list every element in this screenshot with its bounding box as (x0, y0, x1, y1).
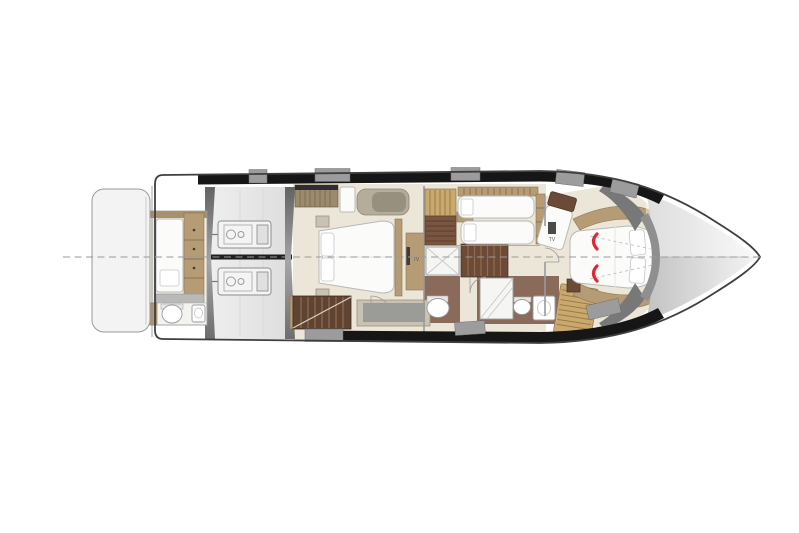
crew-bathroom-joinery (150, 303, 157, 325)
guest-bed-1-pillow (461, 199, 473, 215)
master-stairs (290, 296, 351, 329)
vip-pillow (629, 257, 646, 283)
master-dresser (357, 300, 430, 326)
master-pillow (321, 258, 334, 281)
vip-tv-screen (548, 222, 556, 234)
deck-hatch (315, 169, 350, 182)
crew-toilet (162, 305, 182, 323)
master-pillow (321, 233, 334, 256)
guest-bed-2-pillow (464, 224, 476, 241)
crew-sink (192, 305, 205, 322)
master-sofa (357, 189, 409, 215)
master-tv-screen (407, 247, 411, 265)
master-tv-cabinet: TV (406, 233, 424, 290)
guest-toilet (514, 300, 531, 315)
master-tv-label: TV (413, 257, 420, 263)
deck-hatch (451, 168, 480, 181)
crew-bed-pillow (160, 270, 179, 286)
master-wardrobe (295, 185, 338, 207)
crew-cabin (150, 211, 207, 325)
guest-wardrobe-top (458, 187, 538, 196)
engine-port (210, 221, 271, 248)
central-stairs (461, 244, 508, 277)
bow-deck-highlight (646, 193, 757, 257)
master-cabinet (340, 187, 355, 212)
deck-hatch (455, 320, 486, 335)
companionway-stairs (425, 189, 456, 245)
yacht-floorplan-canvas: TV (0, 0, 799, 533)
floorplan-svg: TV (0, 0, 799, 533)
deck-hatch (249, 170, 267, 184)
guest-cabin-twin (456, 187, 545, 246)
engine-room-floor (206, 187, 288, 339)
engine-starboard (210, 268, 271, 295)
vip-pillow (629, 229, 646, 255)
swim-platform (92, 189, 150, 332)
deck-hatch (305, 329, 343, 342)
guest-sink-basin (538, 301, 551, 316)
master-nightstand (316, 216, 329, 227)
day-head-toilet (427, 299, 449, 318)
vip-tv-label: TV (549, 237, 556, 243)
crew-counter (156, 294, 204, 303)
crew-wardrobe (184, 213, 204, 295)
